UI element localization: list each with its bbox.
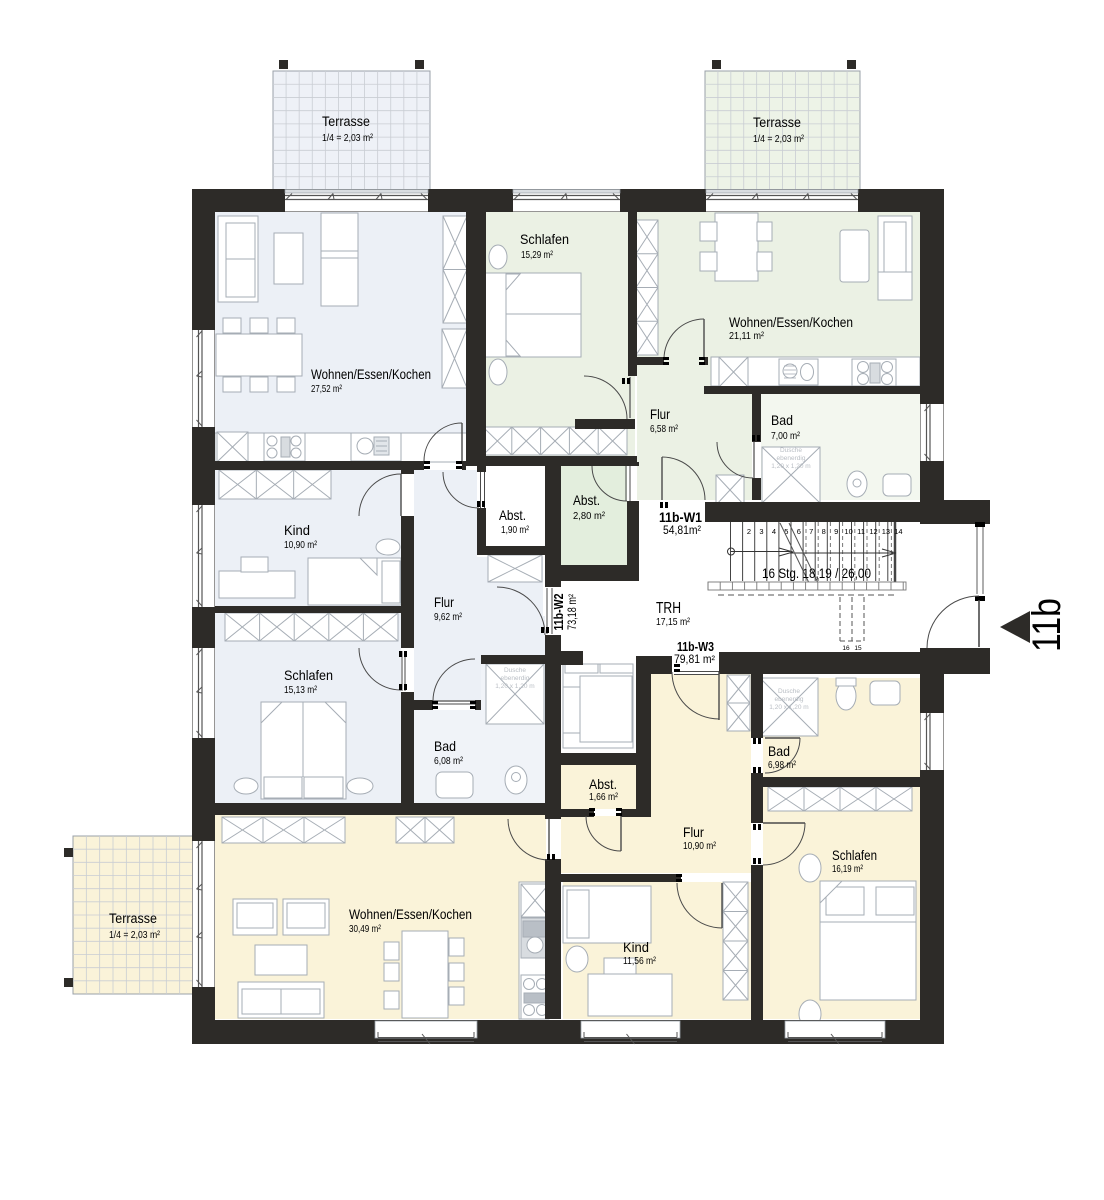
svg-text:Abst.: Abst. [589, 776, 617, 792]
svg-text:16: 16 [842, 645, 850, 652]
svg-text:6: 6 [797, 527, 801, 536]
svg-text:54,81m²: 54,81m² [663, 523, 701, 537]
svg-text:Terrasse: Terrasse [753, 115, 801, 130]
svg-text:16 Stg. 18,19 / 26,00: 16 Stg. 18,19 / 26,00 [762, 565, 871, 581]
svg-text:1,20 x 1,20 m: 1,20 x 1,20 m [495, 683, 534, 690]
svg-text:6,08 m²: 6,08 m² [434, 755, 463, 767]
svg-text:Schlafen: Schlafen [284, 667, 333, 683]
svg-text:Flur: Flur [683, 824, 704, 840]
svg-text:21,11 m²: 21,11 m² [729, 330, 764, 342]
svg-text:Kind: Kind [623, 939, 649, 955]
svg-text:11b-W2: 11b-W2 [551, 594, 566, 631]
svg-text:Bad: Bad [768, 743, 790, 759]
svg-text:Terrasse: Terrasse [109, 911, 157, 926]
svg-text:ebenerdig: ebenerdig [775, 696, 804, 703]
svg-text:Wohnen/Essen/Kochen: Wohnen/Essen/Kochen [729, 314, 853, 330]
svg-text:11: 11 [857, 527, 865, 536]
svg-text:17,15 m²: 17,15 m² [656, 616, 690, 628]
svg-text:79,81 m²: 79,81 m² [674, 654, 715, 666]
svg-text:15,29 m²: 15,29 m² [521, 249, 553, 261]
svg-text:Wohnen/Essen/Kochen: Wohnen/Essen/Kochen [311, 366, 431, 382]
svg-text:Abst.: Abst. [499, 507, 526, 523]
svg-text:2: 2 [747, 527, 751, 536]
svg-text:7,00 m²: 7,00 m² [771, 430, 800, 442]
svg-text:6,58 m²: 6,58 m² [650, 423, 678, 435]
svg-text:Dusche: Dusche [504, 667, 526, 674]
svg-text:ebenerdig: ebenerdig [777, 455, 806, 462]
svg-text:1,90 m²: 1,90 m² [501, 524, 529, 536]
svg-text:TRH: TRH [656, 600, 681, 617]
svg-text:3: 3 [759, 527, 763, 536]
svg-text:Abst.: Abst. [573, 492, 600, 508]
svg-text:73,18 m²: 73,18 m² [567, 594, 579, 630]
svg-text:10: 10 [844, 527, 852, 536]
svg-text:1/4 = 2,03 m²: 1/4 = 2,03 m² [109, 930, 161, 941]
svg-text:2,80 m²: 2,80 m² [573, 510, 605, 522]
svg-text:10,90 m²: 10,90 m² [683, 840, 716, 852]
svg-text:15: 15 [854, 645, 862, 652]
svg-text:5: 5 [784, 527, 788, 536]
svg-text:1,20 x 1,20 m: 1,20 x 1,20 m [771, 463, 810, 470]
svg-text:1,66 m²: 1,66 m² [589, 791, 618, 803]
svg-text:6,98 m²: 6,98 m² [768, 759, 796, 771]
svg-text:9,62 m²: 9,62 m² [434, 611, 462, 623]
svg-text:15,13 m²: 15,13 m² [284, 684, 317, 696]
svg-text:14: 14 [894, 527, 902, 536]
svg-text:11b-W3: 11b-W3 [677, 639, 714, 654]
svg-text:12: 12 [869, 527, 877, 536]
svg-text:Dusche: Dusche [778, 688, 800, 695]
svg-text:1/4 = 2,03 m²: 1/4 = 2,03 m² [753, 134, 805, 145]
svg-text:Wohnen/Essen/Kochen: Wohnen/Essen/Kochen [349, 906, 472, 922]
svg-text:13: 13 [882, 527, 890, 536]
svg-text:Kind: Kind [284, 522, 310, 538]
svg-text:11b: 11b [1025, 598, 1069, 652]
svg-text:16,19 m²: 16,19 m² [832, 863, 863, 875]
svg-text:Bad: Bad [771, 412, 793, 428]
svg-text:9: 9 [834, 527, 838, 536]
svg-text:Schlafen: Schlafen [832, 847, 877, 863]
svg-text:Bad: Bad [434, 738, 456, 754]
svg-text:Terrasse: Terrasse [322, 114, 370, 129]
svg-text:10,90 m²: 10,90 m² [284, 539, 317, 551]
svg-text:Dusche: Dusche [780, 447, 802, 454]
svg-text:8: 8 [822, 527, 826, 536]
svg-text:27,52 m²: 27,52 m² [311, 383, 342, 395]
svg-text:11,56 m²: 11,56 m² [623, 955, 656, 967]
svg-text:30,49 m²: 30,49 m² [349, 923, 381, 935]
svg-text:Schlafen: Schlafen [520, 231, 569, 247]
svg-text:7: 7 [809, 527, 813, 536]
svg-text:ebenerdig: ebenerdig [501, 675, 530, 682]
svg-text:Flur: Flur [434, 594, 454, 610]
svg-text:Flur: Flur [650, 406, 670, 422]
svg-text:4: 4 [772, 527, 776, 536]
svg-text:1/4 = 2,03 m²: 1/4 = 2,03 m² [322, 133, 374, 144]
svg-text:1,20 x 1,20 m: 1,20 x 1,20 m [769, 704, 808, 711]
